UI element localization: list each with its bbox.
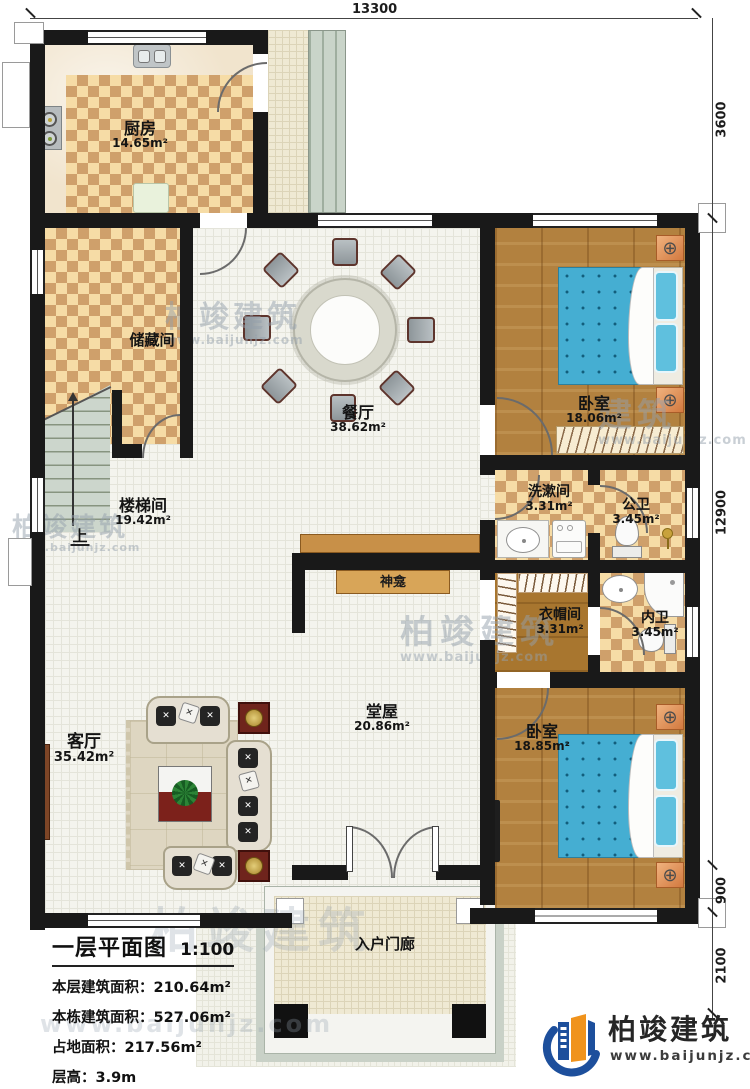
wall-kitchen-right [253, 112, 268, 228]
room-area: 14.65m² [112, 137, 168, 150]
dim-tick [25, 8, 36, 19]
dim-notch [2, 62, 30, 128]
wall-bath-divider [588, 533, 600, 560]
porch-column [452, 1004, 486, 1038]
bed-sheet-fold [628, 734, 654, 858]
altar-counter [300, 534, 480, 553]
window-dining-top [318, 213, 432, 228]
room-label-washroom: 洗漱间 3.31m² [525, 485, 572, 513]
room-name: 入户门廊 [355, 936, 415, 952]
door-leaf [432, 826, 439, 872]
dim-line-top [30, 18, 698, 19]
lamp-icon: ⊕ [662, 707, 677, 728]
room-name: 内卫 [631, 611, 678, 626]
room-name: 卧室 [566, 395, 622, 412]
room-area: 3.31m² [525, 500, 572, 513]
lamp-icon: ⊕ [662, 238, 677, 259]
chair [332, 238, 358, 266]
room-area: 18.85m² [514, 740, 570, 753]
room-name: 公卫 [612, 498, 659, 513]
brand-name: 柏竣建筑 [608, 1008, 750, 1048]
title-row: 一层平面图 1:100 [52, 930, 234, 967]
wall-bedroom2-top [550, 672, 700, 688]
room-name: 厨房 [112, 120, 168, 137]
wall-washzone-bottom [480, 560, 700, 573]
pillow [654, 739, 678, 791]
window-publicbath-right [685, 488, 700, 538]
room-area: 3.45m² [612, 513, 659, 526]
room-name: 衣帽间 [536, 608, 583, 623]
side-table-top [245, 709, 263, 727]
room-name: 堂屋 [354, 703, 410, 720]
hanger-rack [518, 573, 588, 593]
plan-title: 一层平面图 [52, 936, 167, 961]
wall-bedroom1-left [480, 228, 495, 405]
watermark-url: www.baijunjz.com [598, 434, 748, 448]
title-block: 一层平面图 1:100 本层建筑面积：210.64m² 本栋建筑面积：527.0… [52, 930, 234, 1087]
drain-dot [522, 539, 526, 543]
dim-line-right [712, 18, 713, 1018]
nightstand: ⊕ [656, 862, 684, 888]
burner-dot [48, 137, 52, 141]
dim-right-2100: 2100 [715, 921, 730, 1011]
room-area: 18.06m² [566, 412, 622, 425]
dim-right-12900: 12900 [715, 468, 730, 558]
room-area: 19.42m² [115, 514, 171, 527]
room-area: 20.86m² [354, 720, 410, 733]
paper-holder-stem [667, 539, 669, 549]
shrine-cabinet: 神龛 [336, 570, 450, 594]
brand-website: www.baijunjz.com [610, 1048, 750, 1064]
floor-area-line: 本层建筑面积：210.64m² [52, 976, 234, 997]
dining-table-top [310, 295, 380, 365]
wall-hall-bottom-left [292, 865, 348, 880]
pillow [654, 271, 678, 321]
door-leaf [346, 826, 353, 872]
floor-plan: 神龛 ✕ ✕ ✕ ✕ ✕ ✕ ✕ ✕ ✕ ✕ ⊕ ⊕ [0, 0, 750, 1089]
up-text: 上 [70, 528, 89, 546]
pillow [654, 323, 678, 373]
wall-hall-bottom-right [436, 865, 480, 880]
room-name: 洗漱间 [525, 485, 572, 500]
paper-holder-icon [662, 528, 673, 539]
room-name: 卧室 [514, 723, 570, 740]
room-label-public-bath: 公卫 3.45m² [612, 498, 659, 526]
dim-tick [691, 8, 702, 19]
plant-icon [172, 780, 198, 806]
pillow [654, 795, 678, 847]
sink-basin [154, 50, 166, 63]
chair [407, 317, 435, 343]
window-stair-left [30, 478, 45, 532]
wash-basin-icon [506, 527, 540, 553]
wall-cloak-divider-top [588, 573, 600, 607]
room-label-storage: 储藏间 [129, 332, 174, 348]
room-name: 餐厅 [330, 404, 386, 421]
stairs-arrow-icon [68, 392, 78, 401]
wall-cloak-divider-bottom [588, 655, 600, 672]
washer-door [556, 541, 582, 553]
toilet-tank [612, 546, 642, 558]
room-label-living: 客厅 35.42m² [54, 733, 114, 765]
window-kitchen-top [88, 30, 206, 45]
plan-scale: 1:100 [180, 940, 234, 960]
bed-sheet-fold [628, 267, 654, 385]
brand-logo-icon [540, 1010, 602, 1078]
drain-dot [619, 588, 623, 592]
room-area: 3.31m² [536, 623, 583, 636]
wall-seg [480, 455, 495, 475]
nightstand: ⊕ [656, 235, 684, 261]
wall-right-outer [685, 228, 700, 924]
footprint-area-line: 占地面积：217.56m² [52, 1036, 234, 1057]
lamp-icon: ⊕ [662, 865, 677, 886]
kitchen-counter-icon [133, 183, 169, 213]
room-label-bedroom1: 卧室 18.06m² [566, 395, 622, 425]
drain-dot [670, 580, 675, 585]
wall-shrine [292, 553, 488, 570]
room-label-kitchen: 厨房 14.65m² [112, 120, 168, 150]
wall-bedroom2-top-left [480, 672, 497, 688]
dial [567, 525, 573, 531]
wall-bedroom1-bottom [495, 455, 700, 470]
room-label-bedroom2: 卧室 18.85m² [514, 723, 570, 753]
stairs-up-label: 上 [70, 528, 89, 546]
washing-machine-icon [552, 520, 586, 558]
wall-storage-right [180, 228, 193, 458]
room-label-cloakroom: 衣帽间 3.31m² [536, 608, 583, 636]
wall-kitchen-bottom [30, 213, 200, 228]
room-area: 38.62m² [330, 421, 386, 434]
side-table-top [245, 857, 263, 875]
room-label-inner-bath: 内卫 3.45m² [631, 611, 678, 639]
room-label-hall: 堂屋 20.86m² [354, 703, 410, 733]
building-area-line: 本栋建筑面积：527.06m² [52, 1006, 234, 1027]
room-label-dining: 餐厅 38.62m² [330, 404, 386, 434]
room-name: 楼梯间 [115, 497, 171, 514]
wall-stair-side [112, 390, 122, 458]
dim-notch [14, 22, 44, 44]
wall-hall-living-divider [292, 553, 305, 633]
dim-top-value: 13300 [352, 2, 397, 17]
sink-basin [138, 50, 150, 63]
dial [557, 525, 563, 531]
room-label-stairwell: 楼梯间 19.42m² [115, 497, 171, 527]
floor-height-line: 层高：3.9m [52, 1066, 234, 1087]
dim-notch [8, 538, 32, 586]
brand-logo: 柏竣建筑 www.baijunjz.com [540, 1008, 750, 1064]
vanity-counter [497, 520, 549, 558]
window-bedroom2-bottom [535, 908, 657, 924]
window-living-bottom [88, 913, 200, 928]
side-table [238, 850, 270, 882]
room-name: 储藏间 [129, 332, 174, 348]
wall-bath-divider-stub [588, 470, 600, 485]
room-name: 客厅 [54, 733, 114, 751]
room-area: 35.42m² [54, 751, 114, 765]
shrine-label: 神龛 [380, 575, 406, 590]
dining-table [293, 278, 397, 382]
wall-kitchen-right-stub [253, 30, 268, 54]
kitchen-sink-icon [133, 44, 171, 68]
room-label-porch: 入户门廊 [355, 936, 415, 952]
burner-dot [48, 118, 52, 122]
wash-basin-icon [602, 575, 638, 603]
nightstand: ⊕ [656, 704, 684, 730]
window-innerbath-right [685, 607, 700, 657]
window-storage-left [30, 250, 45, 294]
room-area: 3.45m² [631, 626, 678, 639]
side-porch-steps [308, 30, 346, 213]
side-porch-floor [268, 30, 308, 213]
side-table [238, 702, 270, 734]
window-bedroom1-top [533, 213, 657, 228]
stairs-direction-line [72, 400, 74, 526]
dim-right-3600: 3600 [715, 75, 730, 165]
